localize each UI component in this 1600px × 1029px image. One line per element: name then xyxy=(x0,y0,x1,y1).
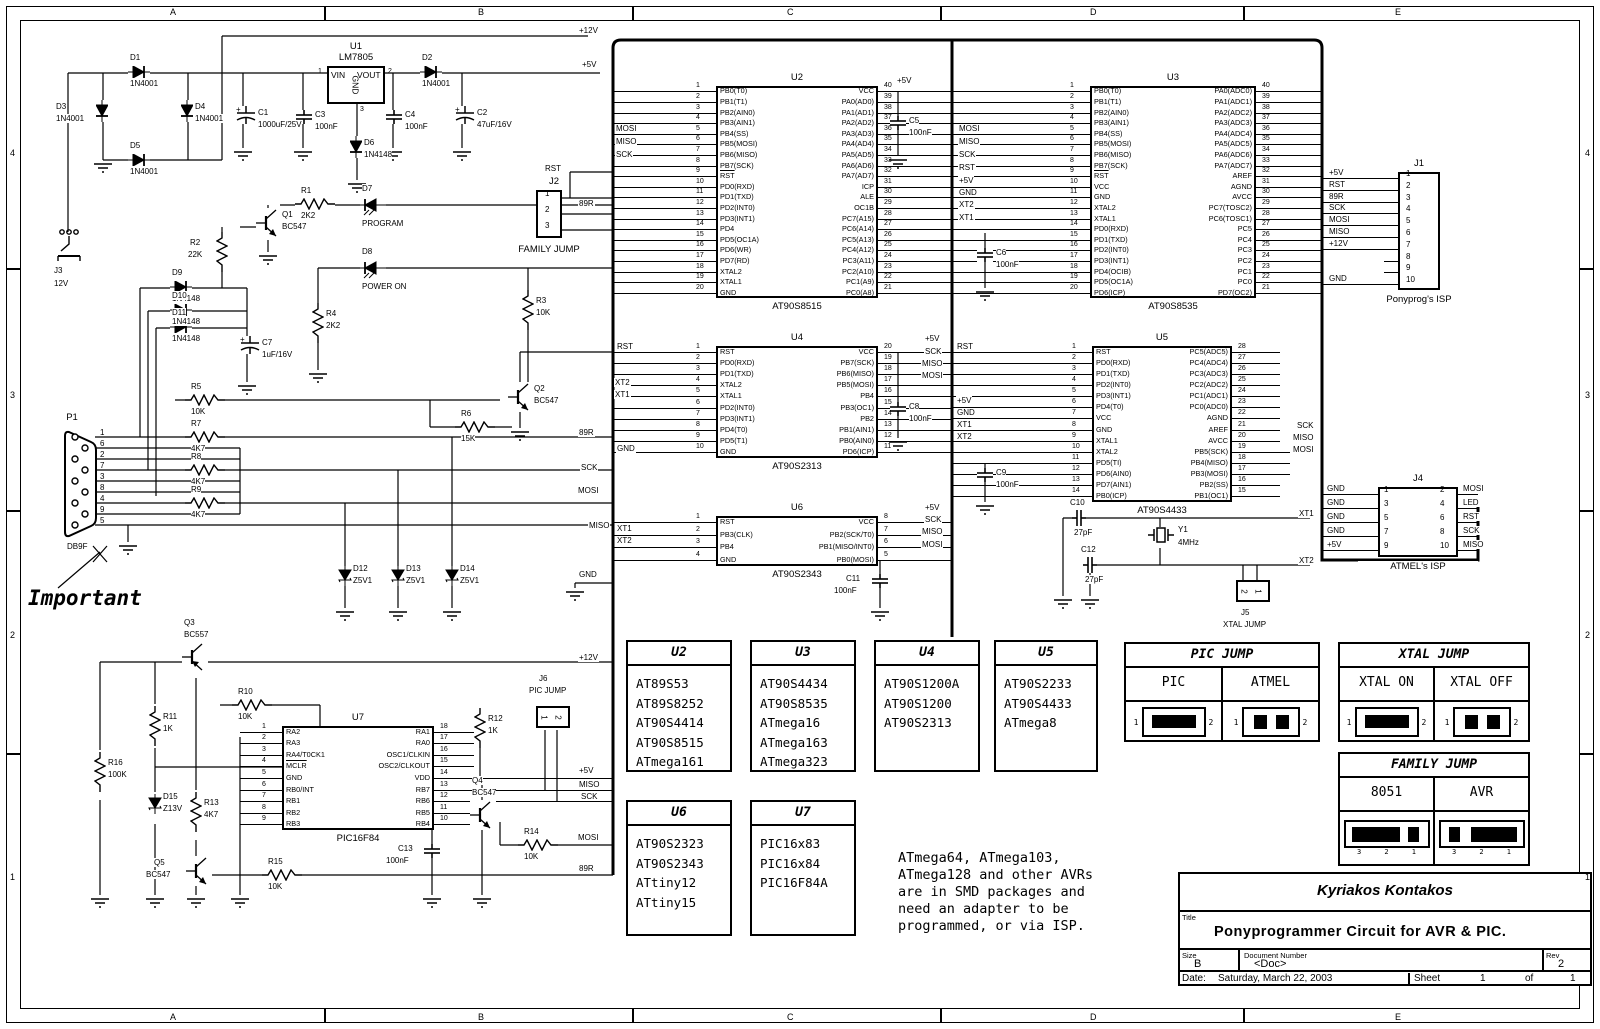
sheet-number: 1 xyxy=(1480,973,1486,984)
ground-symbol xyxy=(389,610,407,622)
part-ref: D5 xyxy=(130,141,140,150)
net-label-+5v: +5V xyxy=(924,503,940,512)
part-value: 1N4001 xyxy=(422,79,450,88)
net-label-gnd: GND xyxy=(1326,526,1346,535)
net-label-gnd: GND xyxy=(1326,498,1346,507)
grid-row-4: 4 xyxy=(1585,148,1590,158)
pin-wire xyxy=(613,91,716,92)
pin-label: PB6(MISO) xyxy=(728,369,874,378)
connector-ref: P1 xyxy=(42,412,102,423)
part-value: 15K xyxy=(461,434,475,443)
net-label-miso: MISO xyxy=(1292,433,1314,442)
ground-symbol xyxy=(423,897,441,909)
pin-number: 1 xyxy=(1070,82,1074,89)
pin-label: VCC xyxy=(728,517,874,526)
net-label-xt2: XT2 xyxy=(616,536,633,545)
part-R7-symbol xyxy=(185,431,225,443)
net-label-mosi: MOSI xyxy=(577,486,599,495)
chip-table-item: AT90S1200A xyxy=(876,674,978,694)
pin-number: 36 xyxy=(884,125,892,132)
pin-label: PD6(ICP) xyxy=(728,447,874,456)
pin-wire xyxy=(240,743,282,744)
pin-label: PC3(ADC3) xyxy=(1082,369,1228,378)
pin-number: 17 xyxy=(884,376,892,383)
pin-number: 5 xyxy=(262,769,266,776)
pin-label: RB6 xyxy=(284,796,430,805)
pin-number: 19 xyxy=(1238,443,1246,450)
part-D13-symbol xyxy=(391,566,405,586)
pin-wire xyxy=(613,441,716,442)
pin-wire xyxy=(613,134,716,135)
pin-label: VCC xyxy=(728,347,874,356)
pin-wire xyxy=(613,352,716,353)
pin-label: AREF xyxy=(1082,425,1228,434)
pin-number: 20 xyxy=(1238,432,1246,439)
ground-symbol xyxy=(473,897,491,909)
part-C2-symbol: + xyxy=(455,106,475,124)
pin-label: PB3(MOSI) xyxy=(1082,469,1228,478)
net-label-sck: SCK xyxy=(924,515,942,524)
pin-wire xyxy=(1232,441,1280,442)
grid-row-4: 4 xyxy=(10,148,15,158)
part-value: 100K xyxy=(108,770,127,779)
pin-wire xyxy=(613,419,716,420)
jumper-table-family-jump: FAMILY JUMP8051AVR321321 xyxy=(1338,752,1530,866)
part-D6-symbol xyxy=(350,136,362,158)
title-block: Kyriakos Kontakos Title Ponyprogrammer C… xyxy=(1178,872,1592,986)
pin-label: PC4(A12) xyxy=(728,245,874,254)
pin-label: PC2(A10) xyxy=(728,267,874,276)
grid-col-E: E xyxy=(1395,7,1401,17)
ground-symbol xyxy=(119,544,137,556)
part-ref: R16 xyxy=(108,758,123,767)
pin-label: PC1 xyxy=(1106,267,1252,276)
chip-table-item: AT90S2343 xyxy=(628,854,730,874)
pin-number: 4 xyxy=(696,551,700,558)
pin-number: 8 xyxy=(696,421,700,428)
pin-wire xyxy=(613,102,716,103)
pin-number: 8 xyxy=(1406,252,1410,261)
pin-label: PA5(AD5) xyxy=(728,150,874,159)
chip-table-U2: U2AT89S53AT89S8252AT90S4414AT90S8515ATme… xyxy=(626,640,732,772)
net-label-mosi: MOSI xyxy=(921,371,943,380)
pin-label: PA7(ADC7) xyxy=(1106,161,1252,170)
pin-label: PC5 xyxy=(1106,224,1252,233)
ground-symbol xyxy=(566,590,584,602)
net-label-xt2: XT2 xyxy=(958,200,975,209)
pin-wire xyxy=(434,824,474,825)
grid-col-E: E xyxy=(1395,1012,1401,1022)
ground-symbol xyxy=(187,897,205,909)
part-ref: R5 xyxy=(191,382,201,391)
part-value: 1K xyxy=(488,726,498,735)
connector-caption: XTAL JUMP xyxy=(1222,620,1267,629)
pin-number: 5 xyxy=(1384,513,1388,522)
grid-row-3: 3 xyxy=(1585,390,1590,400)
pin-number: 11 xyxy=(440,804,447,811)
author-name: Kyriakos Kontakos xyxy=(1180,874,1590,912)
pin-wire xyxy=(1384,272,1398,273)
pin-wire xyxy=(240,813,282,814)
net-label-mosi: MOSI xyxy=(577,833,599,842)
chip-table-U7: U7PIC16x83PIC16x84PIC16F84A xyxy=(750,800,856,936)
pin-label: PC6(A14) xyxy=(728,224,874,233)
net-label-rst: RST xyxy=(958,163,976,172)
pin-wire xyxy=(952,418,1092,419)
chip-table-item: AT90S4414 xyxy=(628,713,730,733)
part-D15-symbol xyxy=(148,794,162,814)
part-ref: C6 xyxy=(996,248,1006,257)
pin-number: 1 xyxy=(1072,343,1076,350)
pin-wire xyxy=(613,408,716,409)
pin-wire xyxy=(952,452,1092,453)
chip-part: AT90S8535 xyxy=(1113,301,1233,312)
pin-wire xyxy=(613,430,716,431)
date-value: Saturday, March 22, 2003 xyxy=(1218,973,1332,984)
part-ref: D6 xyxy=(364,138,374,147)
pin-number: 38 xyxy=(884,104,892,111)
part-ref: R6 xyxy=(461,409,471,418)
pin-number: 15 xyxy=(884,399,892,406)
pin-number: 7 xyxy=(1406,240,1410,249)
pin-number: 10 xyxy=(440,815,448,822)
pin-number: 1 xyxy=(540,715,549,719)
net-label-miso: MISO xyxy=(921,527,943,536)
ground-symbol xyxy=(259,254,277,266)
part-ref: Q1 xyxy=(282,210,293,219)
part-R6-symbol xyxy=(455,421,495,433)
pin-number: 3 xyxy=(696,104,700,111)
part-ref: C4 xyxy=(405,110,415,119)
pin-number: 18 xyxy=(696,263,704,270)
pin-wire xyxy=(434,755,474,756)
pin-number: 18 xyxy=(1238,454,1246,461)
pin-number: 8 xyxy=(1070,157,1074,164)
part-Q1-symbol xyxy=(256,208,282,238)
pin-wire xyxy=(878,396,952,397)
pin-wire xyxy=(1458,550,1478,551)
pin-number: 1 xyxy=(545,189,549,198)
pin-wire xyxy=(434,801,613,802)
pin-number: 13 xyxy=(440,781,448,788)
pin-number: 21 xyxy=(884,284,892,291)
pin-label: PC4(ADC4) xyxy=(1082,358,1228,367)
part-R5-symbol xyxy=(185,394,225,406)
pin-number: 15 xyxy=(1070,231,1078,238)
pin-label: PA0(AD0) xyxy=(728,97,874,106)
part-value: 4MHz xyxy=(1178,538,1199,547)
ground-symbol xyxy=(976,290,994,302)
pin-label: PB1(AIN1) xyxy=(728,425,874,434)
net-label-sck: SCK xyxy=(1296,421,1314,430)
chip-table-item: AT90S4433 xyxy=(996,694,1096,714)
ground-symbol xyxy=(231,897,249,909)
connector-ref: J2 xyxy=(524,176,584,187)
net-label-+5v: +5V xyxy=(1326,540,1342,549)
part-Y1-symbol xyxy=(1148,527,1174,543)
ground-symbol xyxy=(511,430,529,442)
net-label-xt2: XT2 xyxy=(956,432,973,441)
pin-number: 30 xyxy=(1262,188,1270,195)
pin-number: 14 xyxy=(1070,220,1078,227)
pin-number: 7 xyxy=(262,792,266,799)
svg-text:+: + xyxy=(236,106,241,114)
pin-number: 19 xyxy=(696,273,704,280)
net-label-mosi: MOSI xyxy=(1292,445,1314,454)
part-value: 1N4148 xyxy=(172,334,200,343)
net-label-+12v: +12V xyxy=(1328,239,1349,248)
chip-table-U5: U5AT90S2233AT90S4433ATmega8 xyxy=(994,640,1098,772)
jumper-table-header: PICATMEL xyxy=(1126,668,1318,702)
pin-number: 10 xyxy=(1072,443,1080,450)
part-value: BC547 xyxy=(282,222,306,231)
pin-label: AREF xyxy=(1106,171,1252,180)
pin-number: 4 xyxy=(1072,376,1076,383)
pin-number: 2 xyxy=(1240,589,1249,593)
part-value: 47uF/16V xyxy=(477,120,512,129)
part-C4-symbol xyxy=(386,110,402,124)
part-ref: C10 xyxy=(1070,498,1085,507)
part-ref: C12 xyxy=(1081,545,1096,554)
net-label-miso: MISO xyxy=(958,137,980,146)
part-value: 27pF xyxy=(1074,528,1092,537)
pin-number: 7 xyxy=(884,526,888,533)
pin-wire xyxy=(1232,496,1280,497)
pin-label: AVCC xyxy=(1106,192,1252,201)
connector-P1-shape xyxy=(64,430,98,538)
pin-label: PC5(ADC5) xyxy=(1082,347,1228,356)
net-label-gnd: GND xyxy=(956,408,976,417)
pin-number: 6 xyxy=(696,135,700,142)
pin-label: PC6(TOSC1) xyxy=(1106,214,1252,223)
pin-wire xyxy=(1458,508,1478,509)
part-R1-symbol xyxy=(295,198,335,210)
net-label-+5v: +5V xyxy=(958,176,974,185)
ground-symbol xyxy=(1054,598,1072,610)
grid-row-1: 1 xyxy=(1585,872,1590,882)
net-label-+12v: +12V xyxy=(578,653,599,662)
part-value: 27pF xyxy=(1085,575,1103,584)
pin-label: PA4(ADC4) xyxy=(1106,129,1252,138)
jumper-table-header: XTAL ONXTAL OFF xyxy=(1340,668,1528,702)
pin-wire xyxy=(613,363,716,364)
pin-number: 9 xyxy=(696,167,700,174)
pin-number: 2 xyxy=(554,715,563,719)
grid-row-2: 2 xyxy=(1585,630,1590,640)
chip-table-body: AT90S2323AT90S2343ATtiny12ATtiny15 xyxy=(628,826,730,912)
net-label-sck: SCK xyxy=(580,792,598,801)
ground-symbol xyxy=(871,610,889,622)
pin-wire xyxy=(1232,418,1280,419)
chip-table-U3: U3AT90S4434AT90S8535ATmega16ATmega163ATm… xyxy=(750,640,856,772)
net-label-+5v: +5V xyxy=(581,60,597,69)
net-label-xt1: XT1 xyxy=(958,213,975,222)
pin-number: 1 xyxy=(696,82,700,89)
pin-number: 5 xyxy=(696,387,700,394)
part-value: 2K2 xyxy=(301,211,315,220)
ground-symbol xyxy=(336,610,354,622)
net-label-rst: RST xyxy=(1328,180,1346,189)
pin-wire xyxy=(1256,293,1322,294)
part-D3-symbol xyxy=(96,100,108,122)
chip-table-item: ATmega8 xyxy=(996,713,1096,733)
part-ref: D13 xyxy=(406,564,421,573)
pin-wire xyxy=(952,352,1092,353)
pin-number: 6 xyxy=(262,781,266,788)
net-label-sck: SCK xyxy=(580,463,598,472)
pin-number: 9 xyxy=(1384,541,1388,550)
chip-part: AT90S2343 xyxy=(737,569,857,580)
connector-J1 xyxy=(1398,172,1440,290)
part-value: Z5V1 xyxy=(406,576,425,585)
pin-wire xyxy=(240,824,282,825)
net-label-sck: SCK xyxy=(1462,526,1480,535)
pin-number: 28 xyxy=(1238,343,1246,350)
part-value: BC557 xyxy=(184,630,208,639)
connector-ref: J5 xyxy=(1240,608,1250,617)
pin-number: 22 xyxy=(884,273,892,280)
net-label-gnd: GND xyxy=(1326,512,1346,521)
pin-wire xyxy=(1458,536,1478,537)
pin-wire xyxy=(1458,494,1478,495)
part-value: 1K xyxy=(163,724,173,733)
part-Q2-symbol xyxy=(508,382,534,412)
grid-col-B: B xyxy=(478,7,484,17)
doc-value: <Doc> xyxy=(1254,958,1286,970)
part-R13-symbol xyxy=(190,792,202,832)
pin-number: 31 xyxy=(884,178,892,185)
vout-label: VOUT xyxy=(357,70,381,80)
smd-adapter-note: ATmega64, ATmega103, ATmega128 and other… xyxy=(898,850,1093,935)
rev-value: 2 xyxy=(1558,958,1564,970)
part-ref: C11 xyxy=(846,574,860,583)
pin-label: PC7(TOSC2) xyxy=(1106,203,1252,212)
pin-number: 4 xyxy=(1440,499,1444,508)
part-value: 1N4001 xyxy=(130,79,158,88)
pin-label: PC5(A13) xyxy=(728,235,874,244)
pin-number: 39 xyxy=(884,93,892,100)
pin-number: 11 xyxy=(1072,454,1079,461)
pin-number: 5 xyxy=(696,125,700,132)
pin-number: 10 xyxy=(696,443,704,450)
pin-wire xyxy=(1232,430,1280,431)
pin-label: PB1(OC1) xyxy=(1082,491,1228,500)
pin-number: 36 xyxy=(1262,125,1270,132)
pin-label: PC2 xyxy=(1106,256,1252,265)
pin-number: 12 xyxy=(884,432,892,439)
pin-label: PA2(ADC2) xyxy=(1106,108,1252,117)
pin-number: 17 xyxy=(440,734,448,741)
pin-number: 40 xyxy=(884,82,892,89)
pin-wire xyxy=(878,385,952,386)
part-value: 100nF xyxy=(315,122,338,131)
pin-number: 4 xyxy=(100,494,104,503)
pin-label: PC7(A15) xyxy=(728,214,874,223)
part-ref: R10 xyxy=(238,687,253,696)
net-label-sck: SCK xyxy=(958,150,976,159)
jumper-table-title: PIC JUMP xyxy=(1126,644,1318,668)
pin-number: 14 xyxy=(884,410,892,417)
part-value: 1N4001 xyxy=(130,167,158,176)
pin-label: PA3(AD3) xyxy=(728,129,874,138)
net-label-xt2: XT2 xyxy=(614,378,631,387)
pin-wire xyxy=(613,560,716,561)
pin-number: 18 xyxy=(1070,263,1078,270)
chip-part: AT90S2313 xyxy=(737,461,857,472)
pin-wire xyxy=(240,801,282,802)
chip-table-item: AT90S8535 xyxy=(752,694,854,714)
pin-number: 31 xyxy=(1262,178,1270,185)
ground-symbol xyxy=(234,150,252,162)
pin-number: 33 xyxy=(884,157,892,164)
grid-col-D: D xyxy=(1090,7,1097,17)
grid-col-B: B xyxy=(478,1012,484,1022)
pin-wire xyxy=(952,385,1092,386)
pin-number: 3 xyxy=(545,221,549,230)
pin-wire xyxy=(240,732,282,733)
pin-number: 26 xyxy=(1238,365,1246,372)
pin-number: 37 xyxy=(1262,114,1270,121)
pin-number: 7 xyxy=(1070,146,1074,153)
pin-number: 10 xyxy=(1070,178,1078,185)
chip-ref: U6 xyxy=(767,502,827,513)
connector-caption: DB9F xyxy=(66,542,88,551)
pin-wire xyxy=(1232,352,1280,353)
jumper-col-label: AVR xyxy=(1433,778,1528,810)
pin-number: 4 xyxy=(696,376,700,383)
part-ref: C5 xyxy=(909,116,919,125)
pin-label: PA6(ADC6) xyxy=(1106,150,1252,159)
jumper-graphic-atmel: 12 xyxy=(1221,702,1318,742)
pin-wire xyxy=(434,732,474,733)
pin-label: PB0(MOSI) xyxy=(728,555,874,564)
part-R16-symbol xyxy=(94,752,106,792)
pin-number: 29 xyxy=(884,199,892,206)
part-value: 100nF xyxy=(996,260,1019,269)
pin-number: 28 xyxy=(884,210,892,217)
chip-table-title: U7 xyxy=(752,802,854,826)
part-value: 10K xyxy=(524,852,538,861)
part-value: 100nF xyxy=(996,480,1019,489)
pin-number: 22 xyxy=(1262,273,1270,280)
pin-label: PB2(SS) xyxy=(1082,480,1228,489)
pin-number: 15 xyxy=(696,231,704,238)
jumper-table-header: 8051AVR xyxy=(1340,778,1528,812)
pin-wire xyxy=(1232,463,1290,464)
pin-number: 2 xyxy=(696,354,700,361)
pin-number: 13 xyxy=(1072,476,1080,483)
pin-number: 7 xyxy=(100,461,104,470)
net-label-rst: RST xyxy=(956,342,974,351)
chip-part: AT90S8515 xyxy=(737,301,857,312)
regulator-ref: U1 xyxy=(326,41,386,52)
pin-number: 10 xyxy=(1440,541,1449,550)
pin-label: PB2(SCK/T0) xyxy=(728,530,874,539)
part-ref: C9 xyxy=(996,468,1006,477)
size-value: B xyxy=(1194,958,1201,970)
pin-wire xyxy=(952,293,1090,294)
pin-wire xyxy=(1232,452,1290,453)
connector-ref: J3 xyxy=(53,266,63,275)
grid-col-A: A xyxy=(170,7,176,17)
pin-number: 1 xyxy=(1384,485,1388,494)
pin-number: 25 xyxy=(884,241,892,248)
part-value: 100nF xyxy=(386,856,409,865)
jumper-graphic-8051: 321 xyxy=(1340,812,1433,866)
part-ref: R7 xyxy=(191,419,201,428)
part-ref: C3 xyxy=(315,110,325,119)
chip-table-item: AT90S2323 xyxy=(628,834,730,854)
